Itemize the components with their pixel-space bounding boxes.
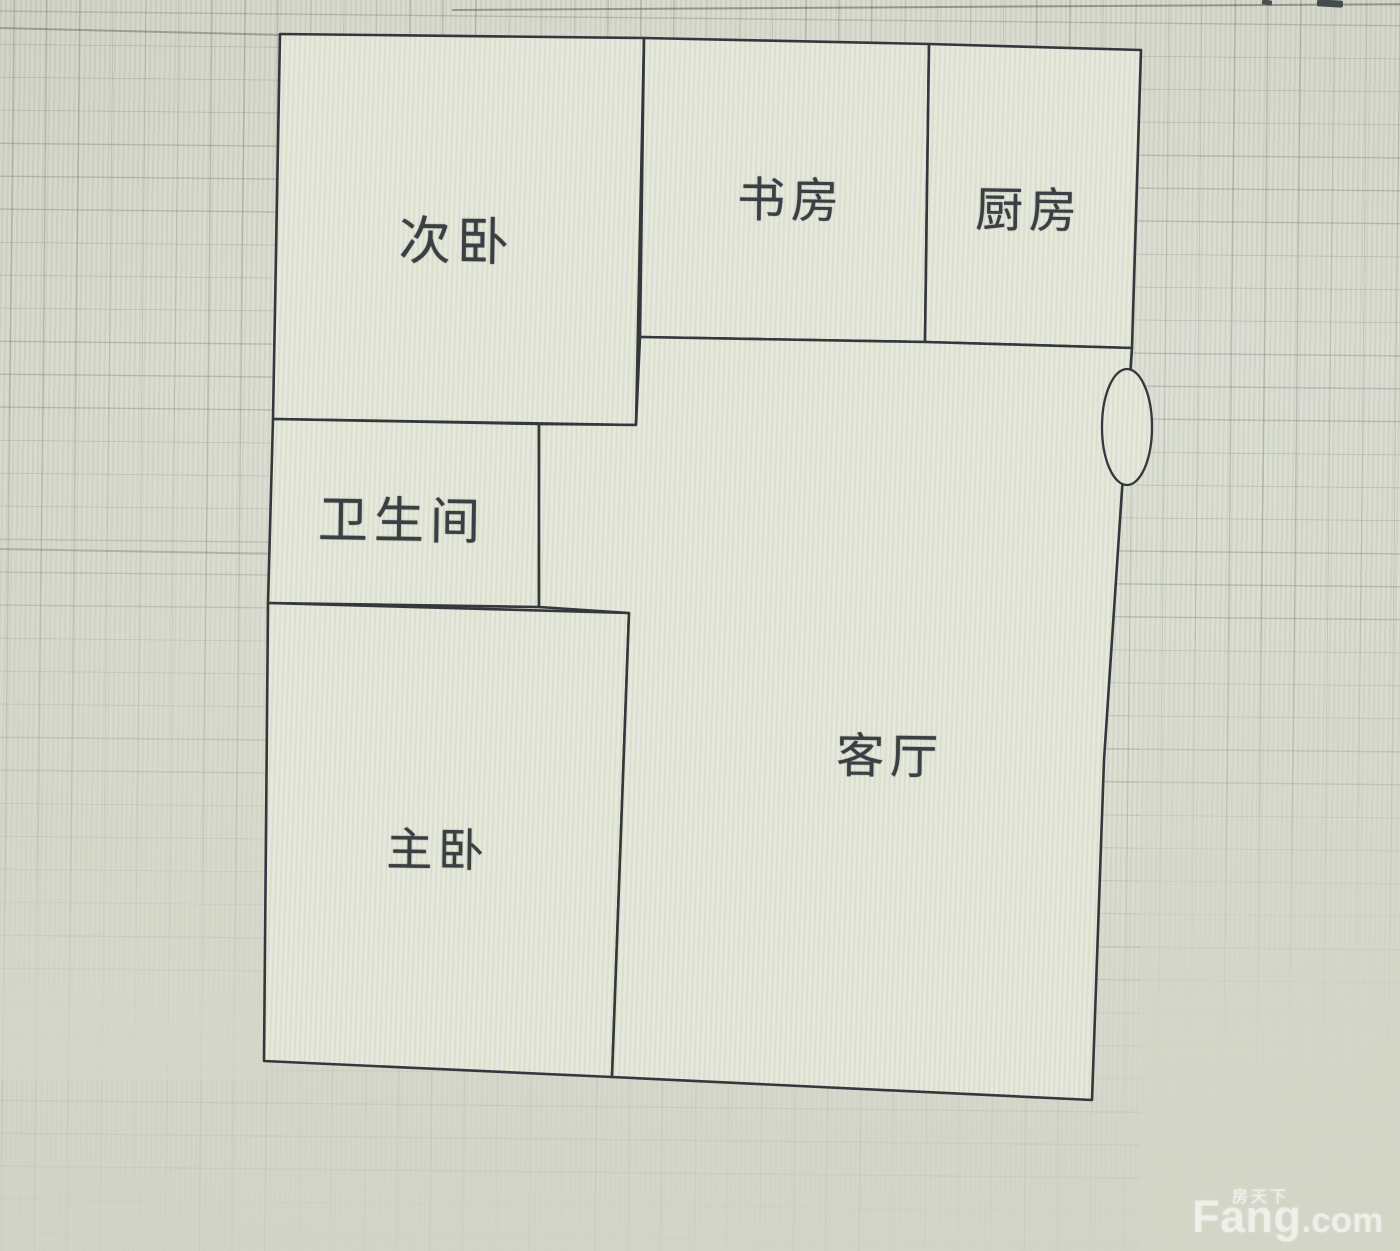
floor-plan-photo: 次卧 书房 厨房 卫生间 主卧 客厅 房天下 Fang.com bbox=[0, 0, 1400, 1251]
room-label-bathroom: 卫生间 bbox=[318, 480, 487, 554]
floor-plan bbox=[0, 0, 1400, 1251]
watermark-en-main: Fang bbox=[1192, 1191, 1302, 1242]
room-label-secondary-bedroom: 次卧 bbox=[398, 199, 516, 276]
fang-watermark: 房天下 Fang.com bbox=[1192, 1183, 1398, 1241]
watermark-en-suffix: .com bbox=[1302, 1201, 1384, 1240]
room-label-master-bedroom: 主卧 bbox=[386, 813, 490, 880]
door-symbol bbox=[1102, 369, 1152, 485]
room-label-living-room: 客厅 bbox=[836, 716, 944, 787]
room-label-study: 书房 bbox=[737, 160, 845, 231]
room-label-kitchen: 厨房 bbox=[975, 170, 1083, 241]
room-shape-living-room bbox=[539, 337, 1132, 1100]
watermark-en-text: Fang.com bbox=[1192, 1191, 1383, 1243]
screen-artifact bbox=[1317, 0, 1343, 8]
